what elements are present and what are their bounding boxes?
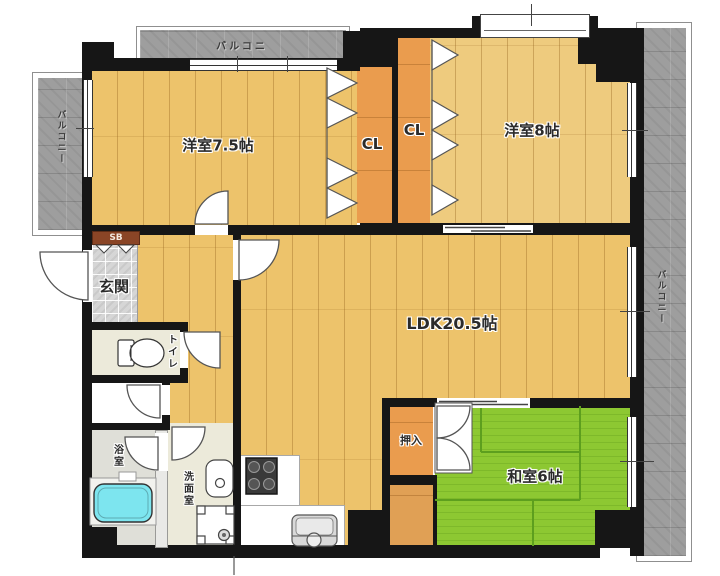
label-toilet: トイレ — [164, 334, 179, 370]
label-bath: 浴室 — [110, 444, 125, 468]
label-closet1: CL — [362, 135, 383, 153]
window-western1-top — [190, 59, 337, 71]
window-bay-inner-line — [484, 30, 586, 31]
bath-door-opening — [155, 433, 168, 471]
entrance-opening — [83, 250, 92, 302]
wall-cl-top-block — [343, 31, 398, 67]
entrance-door — [40, 252, 88, 300]
wall-oshiire-bottom — [388, 475, 437, 485]
wall-toilet-top — [82, 322, 188, 330]
label-western1: 洋室7.5帖 — [182, 135, 254, 156]
wall-hall-ldk — [233, 235, 241, 548]
wall-bottom-left-block — [82, 527, 117, 558]
label-japanese: 和室6帖 — [507, 466, 562, 487]
label-balcony-right: バルコニー — [655, 270, 668, 325]
window-tick-western2 — [622, 130, 648, 131]
label-genkan: 玄関 — [99, 276, 129, 297]
wall-bottom-right-block — [595, 510, 644, 548]
label-oshiire: 押入 — [400, 432, 422, 448]
window-japanese-right — [627, 417, 637, 507]
label-washroom: 洗面室 — [180, 471, 195, 507]
window-bay-tick — [531, 4, 532, 26]
storage-floor — [92, 383, 162, 423]
hall-ldk-door-opening — [233, 240, 241, 280]
label-closet2: CL — [404, 121, 425, 139]
western1-door-opening — [195, 225, 228, 235]
window-tick-top1 — [237, 56, 238, 72]
window-tick-left — [76, 128, 94, 129]
slide-door-japanese — [437, 399, 530, 407]
floor-plan: 洋室7.5帖 洋室8帖 LDK20.5帖 和室6帖 CL CL 押入 玄関 トイ… — [0, 0, 720, 576]
window-ldk-right — [627, 247, 637, 377]
storage-door-opening — [162, 385, 170, 415]
wall-japanese-west — [433, 475, 437, 548]
washroom-floor — [166, 423, 241, 548]
oshiire-lower-floor — [390, 485, 433, 548]
wall-storage-bottom — [82, 423, 170, 430]
wall-cl-divider — [392, 31, 398, 223]
window-tick-ldk — [620, 311, 650, 312]
window-tick-top2 — [287, 56, 288, 72]
wall-oshiire-top — [382, 398, 437, 407]
slide-door-western2 — [443, 225, 533, 233]
toilet-door-opening — [180, 332, 188, 368]
label-western2: 洋室8帖 — [504, 120, 559, 141]
window-bay-western2 — [480, 14, 590, 38]
wall-toilet-bottom — [82, 375, 188, 383]
label-shoebox: SB — [109, 233, 122, 243]
kitchen-counter-bottom — [238, 505, 345, 548]
wall-oshiire-left — [382, 398, 390, 548]
label-balcony-left: バルコニー — [55, 110, 68, 165]
label-ldk: LDK20.5帖 — [406, 310, 497, 334]
window-tick-japanese — [620, 461, 654, 462]
wall-japanese-north — [530, 398, 630, 408]
label-balcony-top: バルコニ — [216, 38, 268, 53]
